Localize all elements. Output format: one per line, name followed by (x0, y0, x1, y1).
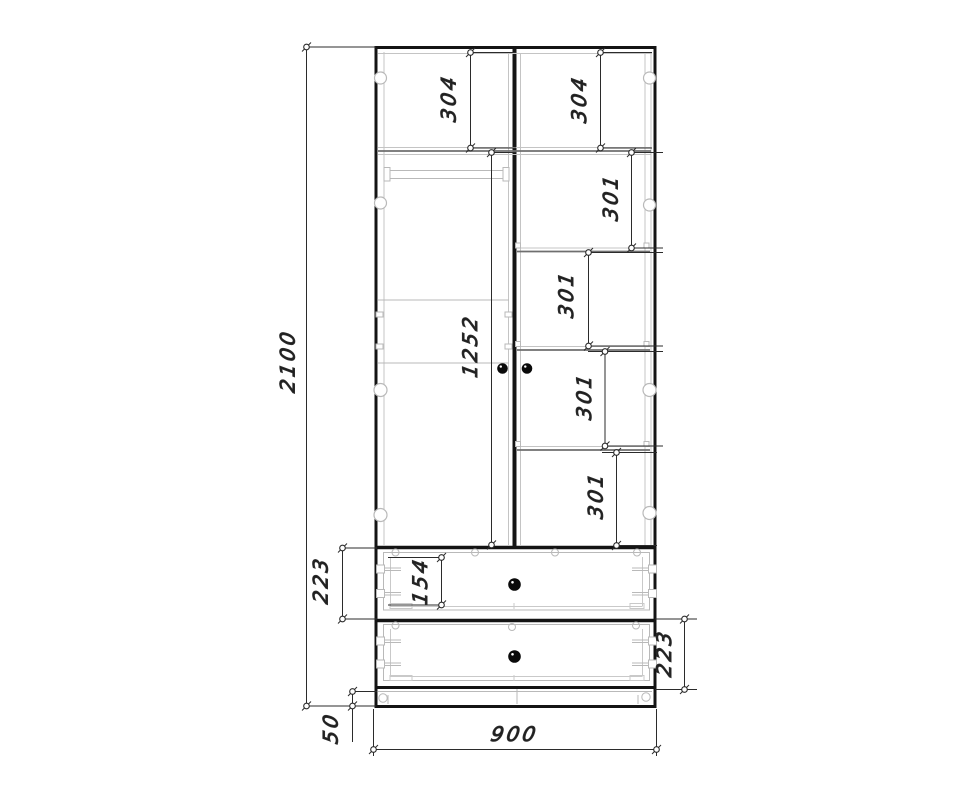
drawer-2 (377, 622, 657, 681)
hinge-icon (374, 509, 387, 522)
hinge-icon (375, 72, 387, 84)
dimension-top-shelf-right: 304 (567, 48, 652, 153)
door-knob-left (497, 363, 508, 374)
dim-label-door-section: 1252 (458, 312, 482, 379)
right-shelf-4 (517, 447, 650, 451)
dimension-top-shelf-left: 304 (437, 48, 516, 153)
dim-label-right-shelf-1: 301 (599, 171, 623, 222)
plinth-fitting-right (642, 693, 650, 701)
hinge-icon (644, 199, 656, 211)
dim-label-overall-height: 2100 (276, 327, 300, 394)
dim-label-right-shelf-2: 301 (554, 268, 578, 319)
hanger-rod (384, 168, 509, 182)
plinth-fitting-left (379, 694, 387, 702)
dimension-drawer-top-height: 223 (309, 544, 377, 624)
cabinet-body (376, 48, 655, 707)
dim-label-plinth-height: 50 (319, 710, 343, 746)
dimension-overall-height: 2100 (276, 43, 376, 711)
dimension-right-shelf-4: 301 (584, 448, 657, 550)
wardrobe-drawing: 2100 304 304 301 301 (0, 0, 978, 800)
drawing-canvas: 2100 304 304 301 301 (0, 0, 978, 800)
dim-label-right-shelf-4: 301 (584, 469, 608, 520)
hinge-icon (375, 197, 387, 209)
dim-label-top-shelf-right: 304 (567, 73, 591, 124)
rod-end-right (503, 168, 509, 182)
hinge-icon (644, 72, 656, 84)
door-knob-right (522, 363, 533, 374)
hinge-icon (643, 384, 656, 397)
rod-end-left (384, 168, 390, 182)
dim-label-drawer-front-height: 154 (408, 555, 432, 606)
hinge-icon (374, 384, 387, 397)
drawer2-knob (508, 650, 521, 663)
dim-label-right-shelf-3: 301 (572, 370, 596, 421)
dim-label-drawer-top-height: 223 (309, 554, 333, 605)
drawer1-knob (508, 578, 521, 591)
dimension-plinth-height: 50 (319, 687, 377, 746)
dimension-overall-width: 900 (369, 709, 661, 756)
hinge-icon (643, 507, 656, 520)
dim-label-overall-width: 900 (489, 722, 540, 746)
dimension-drawer-front-height: 154 (388, 553, 446, 610)
right-shelf-3 (517, 347, 650, 351)
plinth (378, 689, 652, 704)
dimension-right-shelf-3: 301 (572, 347, 663, 451)
dim-label-top-shelf-left: 304 (437, 72, 461, 123)
dim-label-drawer-bottom-height: 223 (652, 627, 676, 678)
dimension-drawer-bottom-height: 223 (652, 615, 697, 695)
dimension-right-shelf-2: 301 (554, 248, 663, 351)
